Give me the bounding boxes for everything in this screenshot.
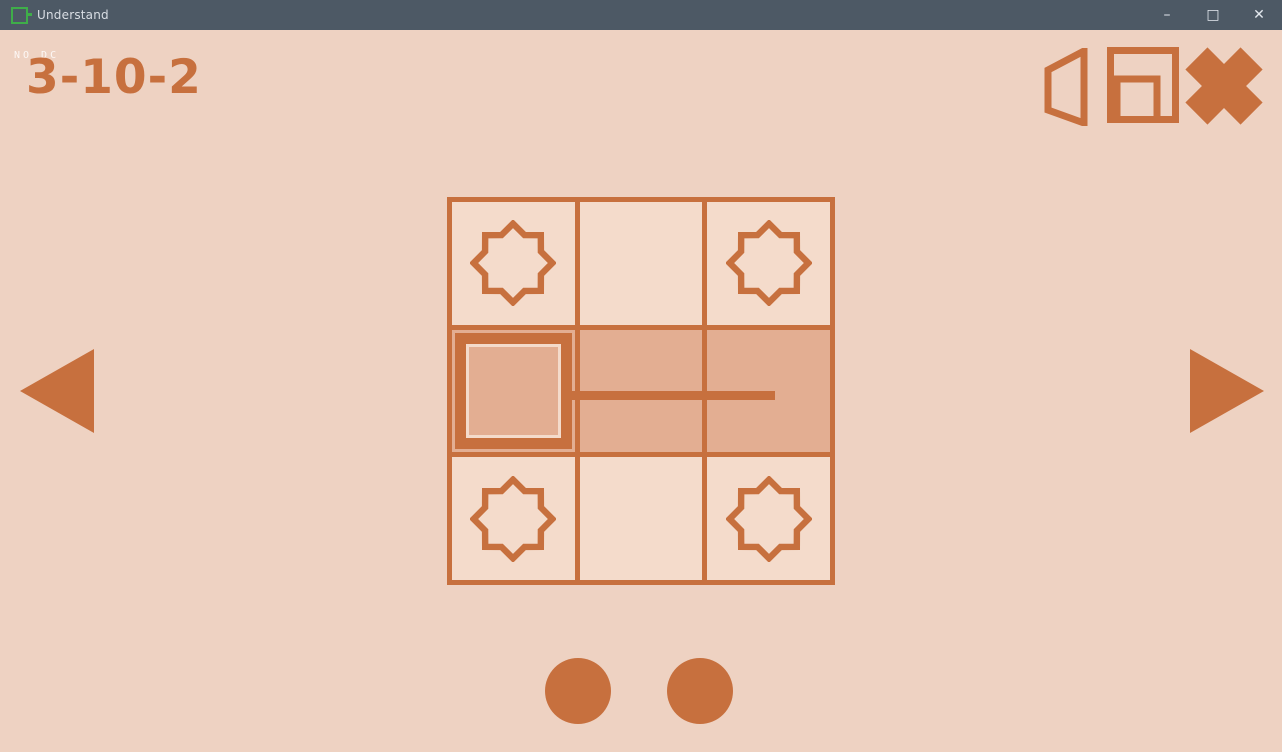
game-area: NO DC 3-10-2 (0, 30, 1282, 752)
maximize-button[interactable]: □ (1190, 0, 1236, 30)
exit-icon[interactable] (1185, 47, 1263, 125)
window-title: Understand (37, 8, 109, 22)
star-icon (470, 220, 556, 306)
page-dot-1[interactable] (545, 658, 611, 724)
window-controls: – □ ✕ (1144, 0, 1282, 30)
level-title: 3-10-2 (26, 54, 202, 101)
board-cell-r2c0[interactable] (452, 457, 575, 580)
window-titlebar: Understand – □ ✕ (0, 0, 1282, 30)
page-dot-2[interactable] (667, 658, 733, 724)
board-cell-r2c2[interactable] (707, 457, 830, 580)
close-button[interactable]: ✕ (1236, 0, 1282, 30)
board-cell-r0c0[interactable] (452, 202, 575, 325)
drawn-line (572, 391, 775, 400)
sound-icon[interactable] (1044, 48, 1088, 126)
star-icon (470, 476, 556, 562)
prev-arrow-button[interactable] (20, 349, 94, 433)
puzzle-board (447, 197, 835, 585)
board-cell-r2c1[interactable] (580, 457, 703, 580)
board-cell-r1c0[interactable] (452, 330, 575, 453)
board-cell-r0c1[interactable] (580, 202, 703, 325)
start-piece[interactable] (455, 333, 572, 450)
star-icon (726, 476, 812, 562)
minimize-button[interactable]: – (1144, 0, 1190, 30)
star-icon (726, 220, 812, 306)
app-icon (11, 7, 28, 24)
window-mode-icon[interactable] (1107, 47, 1179, 123)
board-cell-r0c2[interactable] (707, 202, 830, 325)
next-arrow-button[interactable] (1190, 349, 1264, 433)
